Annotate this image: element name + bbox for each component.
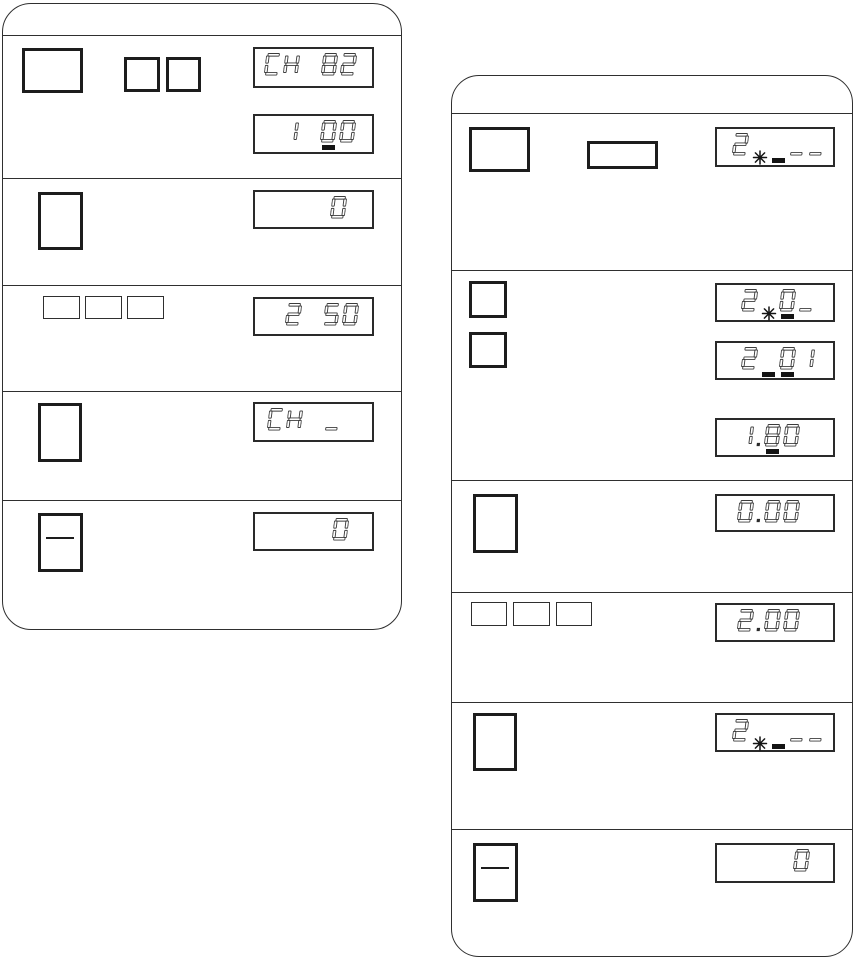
key-flat [471, 602, 507, 626]
lcd-cell [281, 120, 300, 152]
segment-glyph [764, 500, 782, 523]
lcd-cell-row [717, 343, 833, 378]
segment-glyph [320, 120, 338, 143]
lcd-2-- [715, 713, 835, 752]
lcd-cell [797, 289, 816, 321]
blank-glyph [304, 303, 322, 326]
mark-slot [329, 219, 348, 228]
mark-slot [338, 143, 357, 152]
mark-slot [731, 156, 750, 165]
segment-glyph [764, 424, 782, 447]
lcd-cell [301, 53, 320, 85]
lcd-cell [263, 53, 282, 85]
lcd-cell [759, 347, 778, 379]
mark-slot [769, 156, 788, 165]
lcd-cell-row [255, 514, 372, 549]
mark-slot [263, 76, 282, 85]
mark-slot [282, 76, 301, 85]
row-separator [3, 391, 401, 392]
lcd-cell-row [717, 129, 833, 165]
mark-slot [304, 431, 323, 440]
mark-slot [759, 312, 778, 321]
key-portrait [38, 403, 82, 462]
lcd-cell [282, 53, 301, 85]
lcd-cell-row [255, 404, 372, 440]
lcd-cell-row [717, 420, 833, 455]
mark-slot [755, 523, 763, 532]
lcd-cell [284, 303, 303, 335]
row-separator [452, 270, 852, 271]
mark-slot [769, 742, 788, 751]
lcd-cell-row [255, 192, 372, 227]
mark-slot [284, 326, 303, 335]
segment-glyph [789, 719, 807, 742]
lcd-cell [792, 849, 811, 881]
segment-glyph [737, 609, 755, 632]
lcd-cell [736, 500, 755, 532]
lcd-cell [750, 133, 769, 165]
lcd-cell [788, 133, 807, 165]
lcd-cell [341, 303, 360, 335]
mark-slot [759, 370, 778, 379]
mark-slot [763, 523, 782, 532]
key-flat [43, 296, 80, 319]
segment-glyph [283, 53, 301, 76]
lcd-cell [750, 719, 769, 751]
segment-glyph [340, 53, 358, 76]
segment-glyph [764, 609, 782, 632]
mark-slot [341, 326, 360, 335]
segment-glyph [793, 849, 811, 872]
mark-slot [797, 312, 816, 321]
lcd-cell [304, 408, 323, 440]
key-portrait [473, 713, 517, 771]
lcd-200 [715, 603, 835, 642]
row-separator [3, 178, 401, 179]
segment-glyph [741, 289, 759, 312]
lcd-cell [807, 719, 826, 751]
key-flat [85, 296, 122, 319]
lcd-000 [715, 494, 835, 532]
blank-glyph [305, 408, 323, 431]
lcd-cell [339, 53, 358, 85]
manual-figure-page [0, 0, 857, 961]
lcd-cell [731, 719, 750, 751]
blank-glyph [770, 719, 788, 742]
lcd-2-- [715, 127, 835, 167]
mark-slot [303, 326, 322, 335]
mark-slot [285, 431, 304, 440]
lcd-cell [769, 133, 788, 165]
lcd-cell [755, 424, 763, 456]
mark-slot [763, 632, 782, 641]
lcd-zero [253, 190, 374, 229]
mark-slot [778, 312, 797, 321]
cursor-mark [781, 372, 794, 377]
segment-glyph [324, 408, 342, 431]
panel-header-band [3, 4, 401, 36]
segment-glyph [779, 347, 797, 370]
lcd-cell [807, 133, 826, 165]
mark-slot [740, 370, 759, 379]
segment-glyph [286, 408, 304, 431]
key-flat [513, 602, 550, 626]
segment-glyph [779, 289, 797, 312]
key-portrait [473, 494, 518, 553]
blank-glyph [302, 53, 320, 76]
row-separator [452, 829, 852, 830]
mark-slot [736, 523, 755, 532]
mark-slot [740, 312, 759, 321]
lcd-cell [788, 719, 807, 751]
mark-slot [782, 523, 801, 532]
lcd-cell [322, 303, 341, 335]
segment-glyph [808, 133, 826, 156]
lcd-cell [323, 408, 342, 440]
mark-slot [792, 872, 811, 881]
segment-glyph [282, 120, 300, 143]
dash-mark [481, 867, 508, 869]
mark-slot [281, 143, 300, 152]
lcd-cell [338, 120, 357, 152]
mark-slot [736, 632, 755, 641]
blank-glyph [770, 133, 788, 156]
lcd-cell [755, 500, 763, 532]
segment-glyph [783, 424, 801, 447]
mark-slot [323, 431, 342, 440]
lcd-cell [763, 424, 782, 456]
segment-glyph [264, 53, 282, 76]
mark-slot [266, 431, 285, 440]
segment-glyph [342, 303, 360, 326]
lcd-cell-row [255, 49, 372, 86]
lcd-cell [797, 347, 816, 379]
lcd-cell [266, 408, 285, 440]
key-square [124, 57, 160, 92]
lcd-cell [329, 196, 348, 228]
lcd-ch82 [253, 47, 374, 88]
lcd-cell-row [717, 285, 833, 320]
lcd-cell [736, 424, 755, 456]
blank-glyph [751, 719, 769, 742]
cursor-mark [781, 314, 794, 319]
cursor-mark [766, 449, 779, 454]
lcd-ch- [253, 402, 374, 442]
mark-slot [750, 156, 769, 165]
lcd-cell-row [717, 605, 833, 640]
segment-glyph [737, 500, 755, 523]
key-large [469, 127, 530, 172]
key-portrait [38, 192, 83, 250]
lcd-100 [253, 114, 374, 154]
mark-slot [300, 143, 319, 152]
segment-glyph [321, 53, 339, 76]
mark-slot [320, 76, 339, 85]
segment-glyph [808, 719, 826, 742]
lcd-cell [763, 609, 782, 641]
mark-slot [301, 76, 320, 85]
lcd-cell-row [717, 496, 833, 530]
lcd-20- [715, 283, 835, 322]
lcd-cell [320, 53, 339, 85]
key-wide [587, 141, 658, 169]
segment-glyph [285, 303, 303, 326]
lcd-cell [300, 120, 319, 152]
segment-glyph [332, 518, 350, 541]
blank-glyph [301, 120, 319, 143]
segment-glyph [737, 424, 755, 447]
row-separator [452, 702, 852, 703]
cursor-mark [772, 744, 785, 749]
lcd-cell [731, 133, 750, 165]
segment-glyph [783, 500, 801, 523]
lcd-cell [769, 719, 788, 751]
segment-glyph [798, 289, 816, 312]
mark-slot [339, 76, 358, 85]
segment-glyph [732, 133, 750, 156]
mark-slot [782, 447, 801, 456]
mark-slot [750, 742, 769, 751]
key-portrait-dash [38, 513, 83, 572]
mark-slot [755, 447, 763, 456]
segment-glyph [330, 196, 348, 219]
row-separator [3, 500, 401, 501]
mark-slot [755, 632, 763, 641]
key-flat [556, 602, 592, 626]
segment-glyph [267, 408, 285, 431]
lcd-cell [319, 120, 338, 152]
lcd-cell-row [255, 116, 372, 152]
mark-slot [797, 370, 816, 379]
cursor-mark [762, 372, 775, 377]
lcd-cell [755, 609, 763, 641]
lcd-cell [303, 303, 322, 335]
blank-glyph [760, 289, 778, 312]
segment-glyph [798, 347, 816, 370]
lcd-201 [715, 341, 835, 380]
row-separator [3, 285, 401, 286]
mark-slot [788, 156, 807, 165]
lcd-cell-row [717, 845, 833, 881]
lcd-cell [740, 289, 759, 321]
mark-slot [322, 326, 341, 335]
lcd-cell [763, 500, 782, 532]
lcd-cell [285, 408, 304, 440]
lcd-180 [715, 418, 835, 457]
mark-slot [331, 541, 350, 550]
lcd-cell [759, 289, 778, 321]
lcd-cell [736, 609, 755, 641]
lcd-250 [253, 297, 374, 336]
mark-slot [736, 447, 755, 456]
panel-header-band [452, 76, 852, 114]
key-portrait-dash [473, 843, 518, 902]
mark-slot [788, 742, 807, 751]
lcd-cell [778, 347, 797, 379]
row-separator [452, 480, 852, 481]
lcd-cell [782, 424, 801, 456]
lcd-cell [778, 289, 797, 321]
mark-slot [319, 143, 338, 152]
key-large [22, 48, 83, 93]
segment-glyph [323, 303, 341, 326]
lcd-cell [740, 347, 759, 379]
segment-glyph [741, 347, 759, 370]
key-square [469, 281, 507, 318]
lcd-zero [253, 512, 374, 551]
mark-slot [807, 742, 826, 751]
segment-glyph [783, 609, 801, 632]
row-separator [452, 592, 852, 593]
lcd-cell [782, 500, 801, 532]
mark-slot [782, 632, 801, 641]
mark-slot [778, 370, 797, 379]
dash-mark [46, 537, 73, 539]
lcd-cell [782, 609, 801, 641]
cursor-mark [322, 145, 335, 150]
key-square [469, 332, 507, 368]
key-flat [127, 296, 164, 319]
mark-slot [763, 447, 782, 456]
lcd-cell-row [717, 715, 833, 750]
segment-glyph [789, 133, 807, 156]
lcd-cell [331, 518, 350, 550]
lcd-zero [715, 843, 835, 883]
blank-glyph [751, 133, 769, 156]
mark-slot [731, 742, 750, 751]
segment-glyph [339, 120, 357, 143]
key-square [166, 57, 201, 92]
cursor-mark [772, 158, 785, 163]
lcd-cell-row [255, 299, 372, 334]
mark-slot [807, 156, 826, 165]
blank-glyph [760, 347, 778, 370]
segment-glyph [732, 719, 750, 742]
